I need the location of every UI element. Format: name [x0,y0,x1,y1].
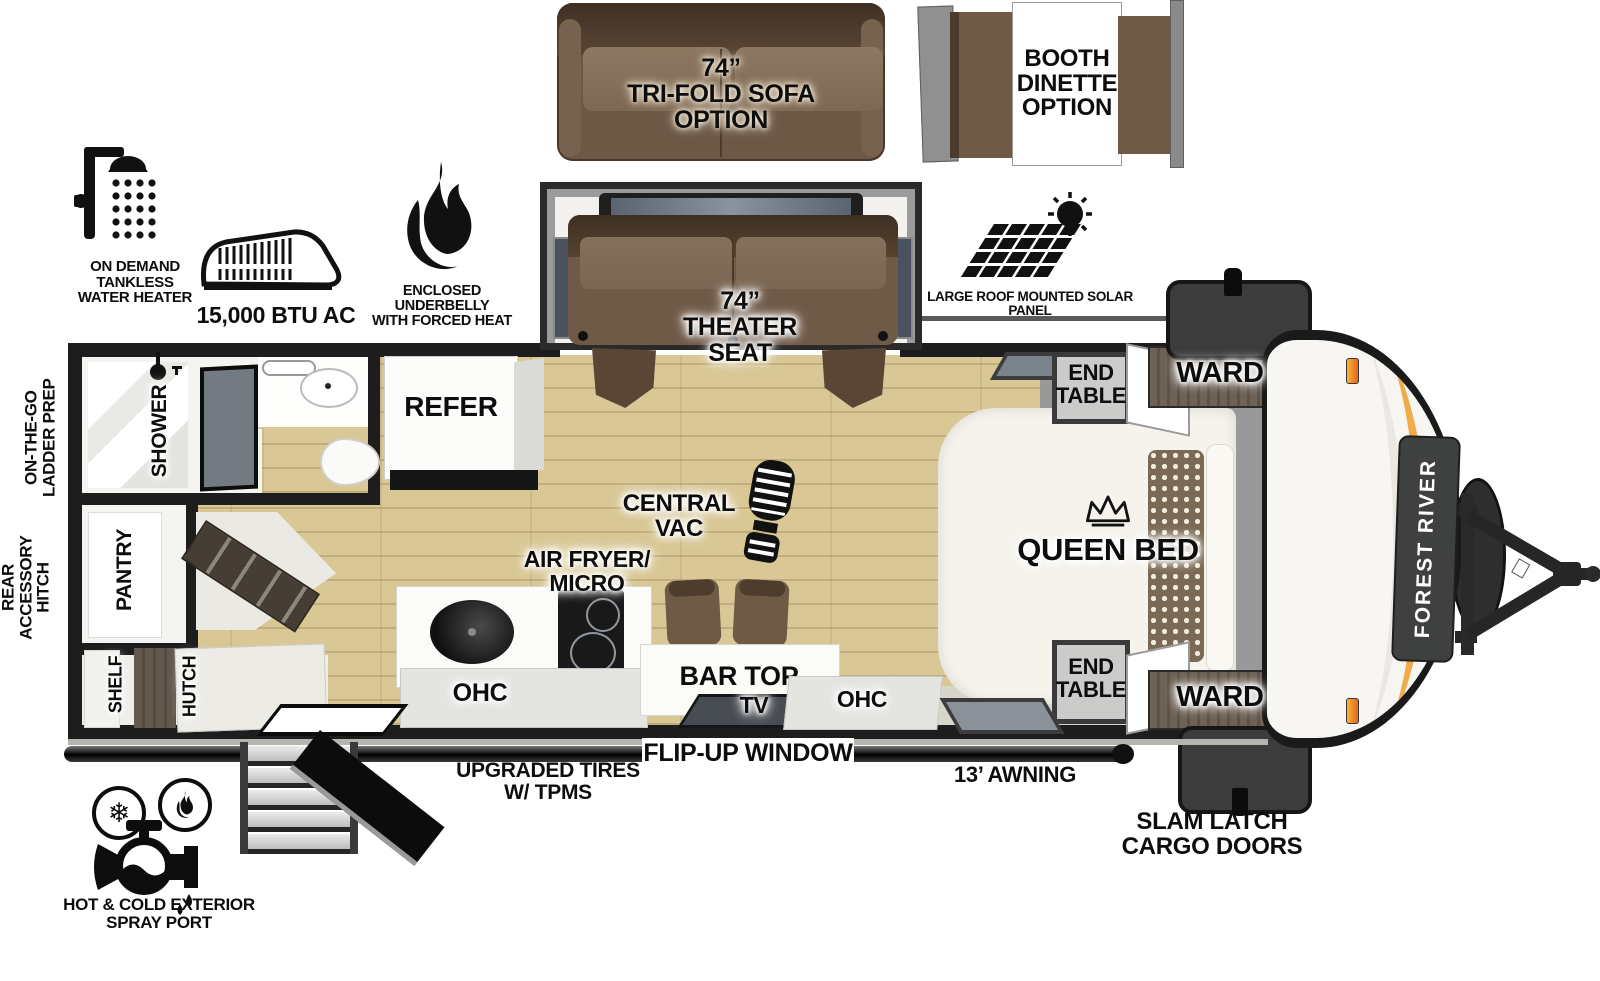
dinette-slide-wall-right [1170,0,1184,168]
marker-light [1346,358,1359,384]
shower-door [200,364,258,491]
ward-top-label: WARD [1158,358,1282,388]
theater-cushion [580,237,732,289]
ac-feature: 15,000 BTU AC [196,222,356,328]
rear-hitch-label: REAR ACCESSORY HITCH [0,503,53,673]
stool-back [739,579,786,597]
slide-window-right [896,237,913,339]
refer-label: REFER [385,392,517,421]
awning-end-cap [1112,744,1134,764]
burner [586,598,620,632]
booth-dinette-label: BOOTH DINETTE OPTION [1017,47,1118,122]
recline-button [878,331,888,341]
crown-icon [1082,492,1134,530]
central-vac-label: CENTRAL VAC [618,492,740,542]
air-fryer-label: AIR FRYER/ MICRO [492,548,682,596]
water-heater-label: ON DEMAND TANKLESS WATER HEATER [60,259,210,306]
underbelly-label: ENCLOSED UNDERBELLY WITH FORCED HEAT [358,284,526,329]
theater-cushion [736,237,886,289]
end-table-top-label: END TABLE [1052,362,1130,408]
step-rail [240,742,248,854]
brand-badge: FOREST RIVER [1391,435,1461,663]
trifold-sofa-label: 74” TRI-FOLD SOFA OPTION [591,55,851,133]
refrigerator-base [390,470,538,490]
shelf-label: SHELF [107,644,126,724]
upgraded-tires-label: UPGRADED TIRES W/ TPMS [428,760,668,804]
hutch-label: HUTCH [181,641,200,731]
ward-bottom-label: WARD [1158,682,1282,712]
entry-door [255,704,408,736]
solar-panel-icon [952,190,1112,286]
shower-head-icon [70,143,190,255]
sink-drain [468,628,476,636]
theater-seat-label: 74” THEATER SEAT [650,288,830,366]
hitch-a-frame [1455,465,1600,675]
end-table-bottom-label: END TABLE [1052,656,1130,702]
queen-bed-label: QUEEN BED [990,534,1226,566]
cooktop [558,590,624,676]
ac-label: 15,000 BTU AC [196,304,356,328]
tv-label: TV [722,694,786,718]
recline-button [578,331,588,341]
cargo-latch-top [1224,268,1242,296]
pantry-label: PANTRY [114,510,136,630]
underbelly-feature: ENCLOSED UNDERBELLY WITH FORCED HEAT [358,160,526,329]
slam-latch-label: SLAM LATCH CARGO DOORS [1092,810,1332,860]
booth-dinette-option: BOOTH DINETTE OPTION [920,0,1182,166]
bath-faucet-dot [325,383,331,389]
ac-unit-icon [196,222,346,298]
trifold-sofa-option: 74” TRI-FOLD SOFA OPTION [557,3,885,161]
flip-up-window-label: FLIP-UP WINDOW [642,738,854,768]
ohc-left-label: OHC [420,680,540,706]
flame-icon [396,160,486,278]
brand-label: FOREST RIVER [1411,459,1441,639]
ohc-right-label: OHC [800,688,924,712]
step-tread [248,812,350,832]
bedroom-window-bottom [940,698,1065,734]
awning-label: 13’ AWNING [930,764,1100,787]
step-tread [248,834,350,854]
water-heater-feature: ON DEMAND TANKLESS WATER HEATER [60,143,210,306]
wall-left [68,343,82,739]
marker-light [1346,698,1359,724]
shower-label: SHOWER [149,371,171,491]
hutch-cabinet [134,648,176,728]
wall-bath-bottom [68,493,380,505]
spray-port-label: HOT & COLD EXTERIOR SPRAY PORT [44,896,274,931]
bar-stool [732,579,789,648]
sofa-arm-left [559,19,581,157]
dinette-table: BOOTH DINETTE OPTION [1012,2,1122,166]
refrigerator-side [514,358,544,474]
rv-floorplan-diagram: 74” TRI-FOLD SOFA OPTION BOOTH DINETTE O… [0,0,1600,981]
